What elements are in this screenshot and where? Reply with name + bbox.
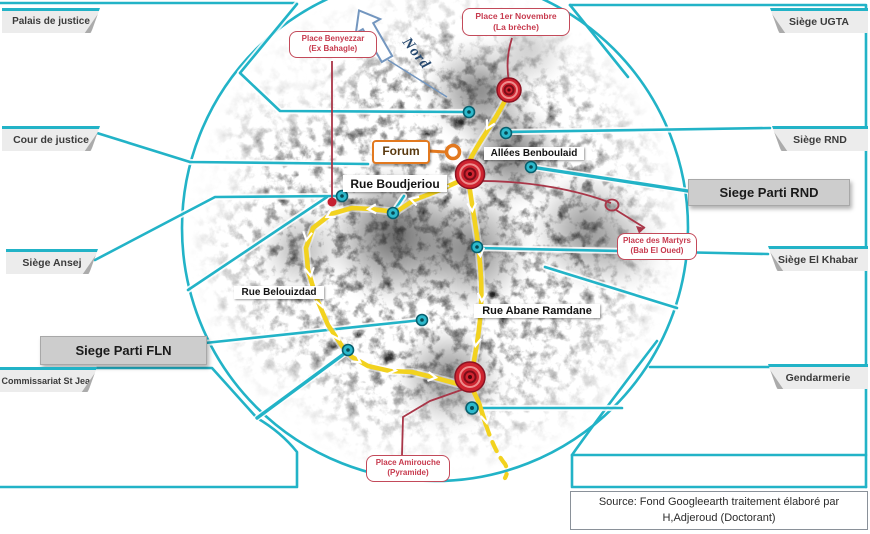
callout-tab-siege-ansej: Siège Ansej [6,249,98,274]
street-text: Allées Benboulaid [491,148,578,159]
forum-pointer [429,146,460,159]
callout-tab-cour-de-justice: Cour de justice [2,126,100,151]
callout-label: Siège RND [793,134,847,146]
callout-label: Siège Ansej [22,257,81,269]
place-line1: Place des Martyrs [621,236,693,246]
callout-label: Siege Parti RND [720,185,819,200]
street-text: Rue Boudjeriou [350,177,439,191]
callout-tab-siege-el-khabar: Siège El Khabar [768,246,868,271]
callout-label: Gendarmerie [786,372,851,384]
callout-label: Siège El Khabar [778,254,858,266]
marker-forum-square [456,160,485,189]
place-label-des-martyrs: Place des Martyrs (Bab El Oued) [617,233,697,260]
source-line1: Source: Fond Googleearth traitement élab… [571,495,867,511]
forum-text: Forum [382,144,419,158]
benyezzar-point-marker [328,198,337,207]
callout-box-siege-parti-fln: Siege Parti FLN [40,336,207,365]
callout-label: Palais de justice [12,16,90,27]
callout-tab-siege-rnd: Siège RND [772,126,868,151]
source-line2: H,Adjeroud (Doctorant) [571,511,867,527]
place-line2: (La brèche) [466,22,566,33]
place-line2: (Bab El Oued) [621,246,693,256]
callout-label: Cour de justice [13,134,89,146]
callout-tab-commissariat-st-jean: Commissariat St Jean [0,367,97,392]
callout-label: Siege Parti FLN [75,343,171,358]
callout-label: Commissariat St Jean [1,376,95,386]
place-label-amirouche: Place Amirouche (Pyramide) [366,455,450,482]
callout-label: Siège UGTA [789,16,849,28]
north-label: Nord [398,34,433,73]
place-label-1er-novembre: Place 1er Novembre (La brèche) [462,8,570,36]
place-line1: Place Amirouche [370,458,446,468]
linework-overlay: Nord [0,0,870,534]
street-label-rue-belouizdad: Rue Belouizdad [234,286,324,299]
street-label-rue-boudjeriou: Rue Boudjeriou [343,175,447,192]
street-text: Rue Belouizdad [241,287,316,298]
marker-place-amirouche [455,362,485,392]
place-line2: (Pyramide) [370,468,446,478]
callout-tab-palais-de-justice: Palais de justice [2,8,100,33]
place-line2: (Ex Bahagle) [293,44,373,54]
callout-box-siege-parti-rnd: Siege Parti RND [688,179,850,206]
annotated-map-figure: Nord Palais de justice Cour de justice S… [0,0,870,534]
street-label-rue-abane-ramdane: Rue Abane Ramdane [474,304,600,318]
place-line1: Place Benyezzar [293,34,373,44]
street-text: Rue Abane Ramdane [482,305,592,317]
forum-label: Forum [372,140,430,164]
callout-tab-gendarmerie: Gendarmerie [768,364,868,389]
marker-place-1er-novembre [497,78,521,102]
place-label-benyezzar: Place Benyezzar (Ex Bahagle) [289,31,377,58]
callout-tab-siege-ugta: Siège UGTA [770,8,868,33]
place-line1: Place 1er Novembre [466,11,566,22]
street-label-allees-benboulaid: Allées Benboulaid [484,147,584,160]
source-credit-box: Source: Fond Googleearth traitement élab… [570,491,868,530]
